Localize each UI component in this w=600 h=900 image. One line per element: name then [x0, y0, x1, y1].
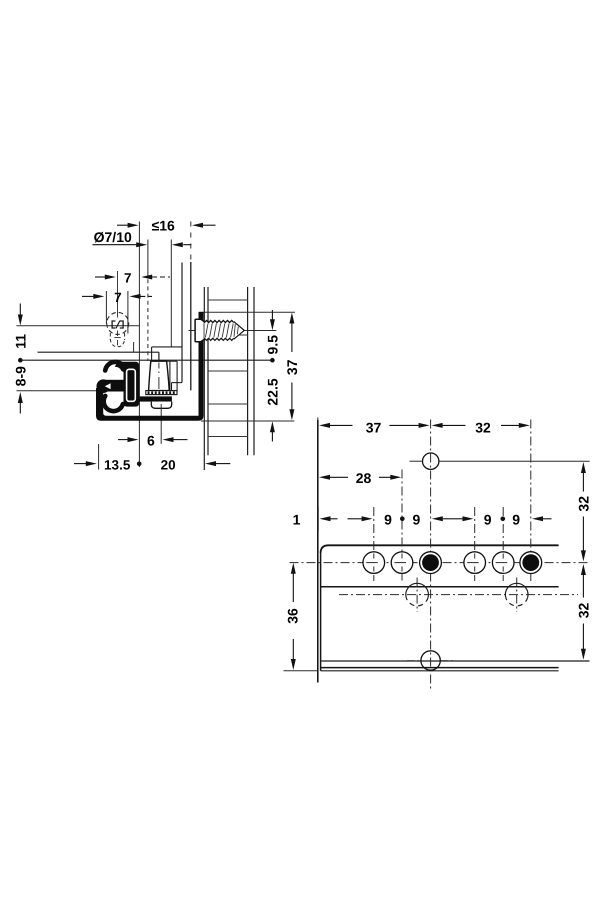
svg-text:32: 32 — [575, 496, 591, 512]
svg-text:32: 32 — [475, 420, 491, 436]
svg-text:7: 7 — [124, 271, 132, 286]
svg-text:32: 32 — [575, 603, 591, 619]
svg-text:7: 7 — [114, 290, 122, 305]
svg-text:36: 36 — [284, 608, 300, 624]
svg-text:9: 9 — [512, 512, 520, 528]
svg-text:37: 37 — [284, 359, 300, 375]
svg-text:20: 20 — [161, 457, 176, 472]
svg-text:22.5: 22.5 — [264, 378, 280, 405]
svg-text:Ø7/10: Ø7/10 — [94, 229, 132, 245]
svg-text:6: 6 — [147, 432, 155, 448]
svg-text:≤16: ≤16 — [152, 218, 175, 234]
svg-text:13.5: 13.5 — [104, 457, 131, 472]
svg-text:9: 9 — [413, 512, 421, 528]
svg-text:1: 1 — [293, 512, 301, 528]
svg-text:9.5: 9.5 — [264, 335, 280, 355]
svg-text:8-9: 8-9 — [12, 366, 28, 386]
svg-text:28: 28 — [356, 470, 372, 486]
svg-text:37: 37 — [366, 420, 382, 436]
svg-text:11: 11 — [12, 334, 28, 349]
svg-text:9: 9 — [384, 512, 392, 528]
svg-text:9: 9 — [484, 512, 492, 528]
